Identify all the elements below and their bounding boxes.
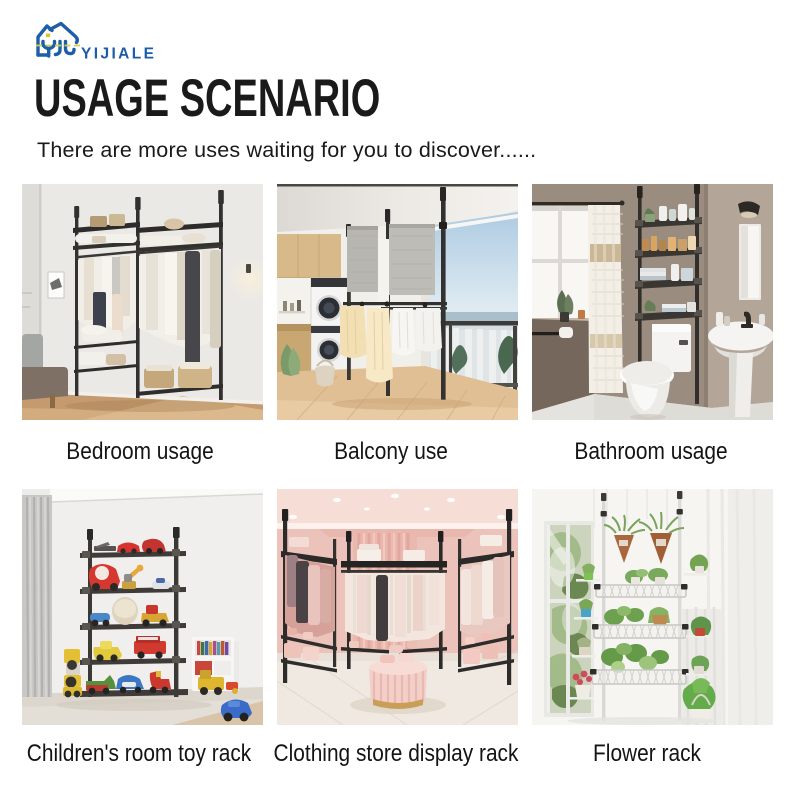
svg-text:YIJIALE: YIJIALE — [81, 46, 156, 63]
